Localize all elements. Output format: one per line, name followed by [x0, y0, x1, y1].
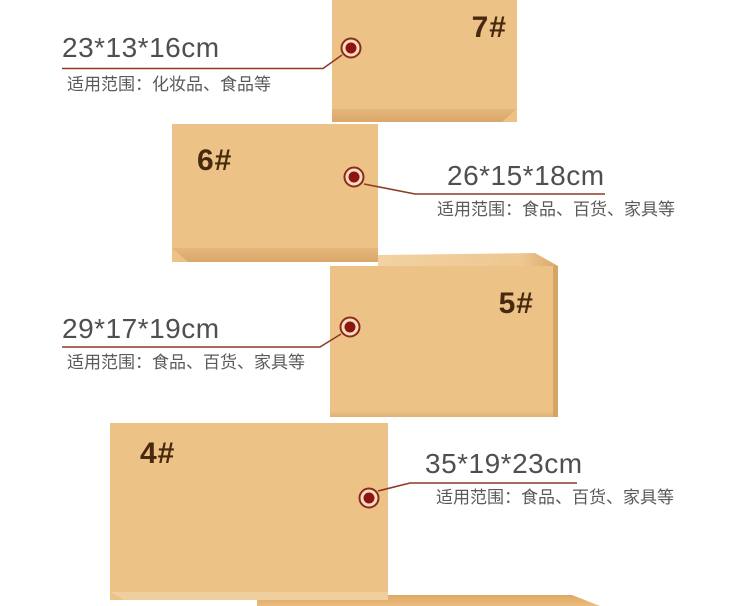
callout-3-scope: 适用范围：食品、百货、家具等 — [67, 354, 305, 371]
callout-1-dimensions: 23*13*16cm — [62, 34, 271, 62]
callout-2-dimensions: 26*15*18cm — [447, 162, 675, 190]
box-6-label: 6# — [197, 146, 232, 176]
callout-1-scope: 适用范围：化妆品、食品等 — [67, 76, 271, 93]
callout-2-scope: 适用范围：食品、百货、家具等 — [437, 201, 675, 218]
box-7-bottom-edge — [332, 109, 517, 122]
callout-1: 23*13*16cm 适用范围：化妆品、食品等 — [62, 34, 271, 93]
callout-2: 26*15*18cm 适用范围：食品、百货、家具等 — [437, 162, 675, 218]
callout-3: 29*17*19cm 适用范围：食品、百货、家具等 — [62, 315, 305, 371]
box-7-label: 7# — [472, 13, 507, 43]
callout-4-dimensions: 35*19*23cm — [425, 450, 674, 478]
carton-size-infographic: 7# 6# 5# 4# — [0, 0, 750, 606]
box-5-label: 5# — [499, 289, 534, 319]
callout-3-dimensions: 29*17*19cm — [62, 315, 305, 343]
box-6: 6# — [172, 124, 378, 262]
box-5-top-edge — [378, 253, 558, 266]
callout-4: 35*19*23cm 适用范围：食品、百货、家具等 — [425, 450, 674, 506]
box-4-label: 4# — [140, 439, 175, 469]
box-6-bottom-edge — [172, 248, 378, 262]
box-7: 7# — [332, 0, 517, 122]
box-5-right-edge — [553, 266, 558, 417]
box-5: 5# — [330, 266, 558, 417]
callout-4-scope: 适用范围：食品、百货、家具等 — [436, 489, 674, 506]
box-4-bottom-edge — [110, 592, 388, 600]
box-4: 4# — [110, 423, 388, 600]
